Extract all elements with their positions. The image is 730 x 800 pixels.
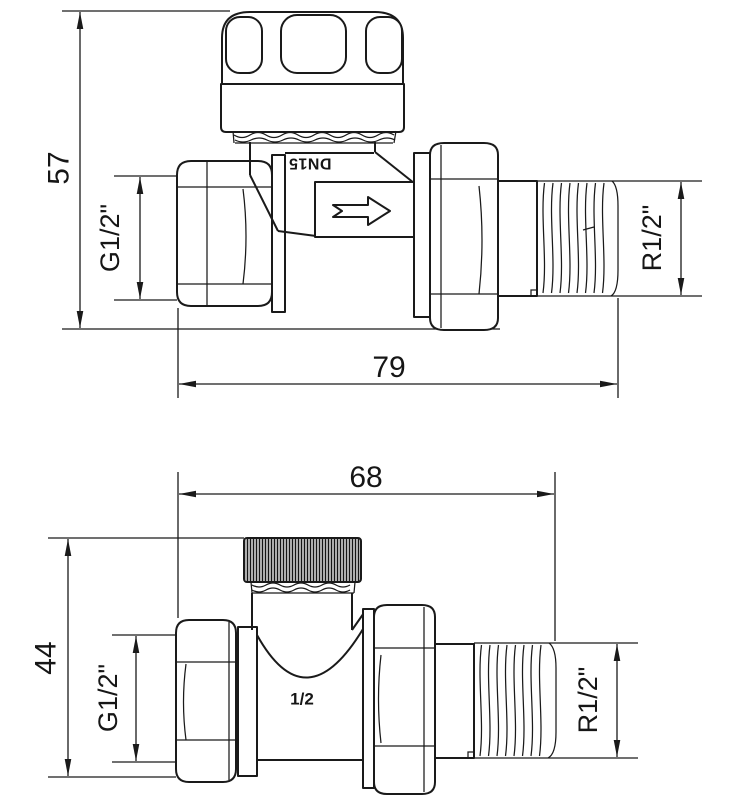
union-nut-top (414, 143, 498, 330)
body-dome-curve (257, 629, 363, 678)
inlet-thread-label: G1/2" (93, 664, 123, 732)
thread-hatching (543, 183, 604, 293)
knurled-cap (244, 538, 361, 593)
cap-thread-ring (251, 582, 355, 593)
dim-outlet-thread-bottom: R1/2" (573, 644, 617, 757)
thread-end-curve (611, 181, 618, 296)
body-marking: DN15 (289, 155, 332, 172)
flow-arrow-plate (315, 182, 415, 237)
union-collar (414, 153, 430, 317)
inlet-hex-nut-bottom (176, 620, 257, 782)
valve-body-bottom: 1/2 (252, 593, 366, 760)
thread-end-curve (548, 643, 556, 758)
dim-height-label: 44 (30, 641, 63, 674)
inlet-collar (238, 627, 257, 776)
union-nut-bottom (363, 605, 435, 794)
body-marking: 1/2 (290, 690, 314, 709)
handwheel-flute (226, 17, 262, 73)
bottom-view-drawing: 68 44 G1/2" (30, 461, 639, 794)
union-collar (363, 609, 374, 788)
technical-drawing-page: 57 G1/2" (0, 0, 730, 800)
outlet-neck (435, 644, 474, 758)
dim-inlet-thread-bottom: G1/2" (93, 635, 176, 762)
inlet-hex-nut (177, 155, 285, 312)
outlet-thread-label: R1/2" (573, 667, 603, 734)
dim-length-79: 79 (178, 298, 618, 398)
handwheel (221, 12, 404, 143)
inlet-collar (272, 155, 285, 312)
hex-nut-body (176, 620, 236, 782)
handwheel-flute (281, 15, 346, 73)
body-slant (375, 152, 414, 183)
dim-length-label: 68 (349, 461, 382, 494)
union-hex-body (374, 605, 435, 794)
outlet-neck (498, 181, 537, 296)
handwheel-flute (366, 17, 402, 73)
outlet-male-thread-top (498, 181, 702, 296)
union-hex-body (430, 143, 498, 330)
dim-height-label: 57 (43, 151, 76, 184)
valve-dimension-drawing: 57 G1/2" (0, 0, 730, 800)
outlet-thread-label: R1/2" (637, 205, 667, 272)
thread-hatching (480, 645, 541, 756)
outlet-male-thread-bottom (435, 643, 638, 758)
dim-inlet-thread-top: G1/2" (95, 176, 177, 300)
inlet-thread-label: G1/2" (95, 204, 125, 272)
knurled-cap-body (244, 538, 361, 582)
top-view-drawing: 57 G1/2" (43, 11, 703, 398)
dim-length-label: 79 (372, 351, 405, 384)
handwheel-band (221, 84, 404, 132)
dim-outlet-thread-top: R1/2" (637, 182, 681, 295)
